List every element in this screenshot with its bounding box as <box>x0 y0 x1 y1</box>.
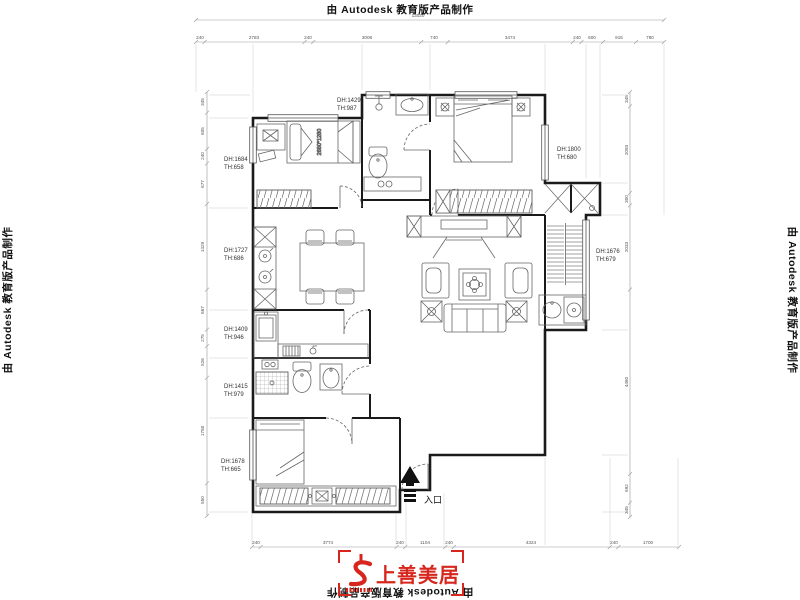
tag-dh: DH:1684 <box>224 157 248 163</box>
entrance-label: 入口 <box>424 495 442 505</box>
window-bottom-bedroom <box>250 430 257 480</box>
doors <box>326 124 458 490</box>
tag-th: TH:686 <box>224 256 244 262</box>
dim: 2093 <box>624 144 629 155</box>
wardrobe-top-right <box>436 190 532 213</box>
armchair-right <box>505 263 532 298</box>
dim: 740 <box>430 35 438 40</box>
window-bath-top <box>366 92 390 99</box>
dining-cabinet <box>254 227 276 309</box>
dim: 915 <box>615 35 623 40</box>
tag-th: TH:665 <box>221 467 241 473</box>
dim: 1758 <box>200 425 205 436</box>
room-tag: DH:1800 TH:680 <box>557 147 581 161</box>
room-tag: DH:1684 TH:658 <box>224 157 248 171</box>
dim: 692 <box>624 484 629 492</box>
dim: 345 <box>624 506 629 514</box>
dim: 345 <box>200 98 205 106</box>
dim: 1104 <box>420 540 430 545</box>
room-tag: DH:1409 TH:946 <box>224 327 248 341</box>
entrance-marker: 入口 <box>400 466 442 505</box>
room-tag: DH:1678 TH:665 <box>221 459 245 473</box>
dim: 300 <box>624 195 629 203</box>
tag-th: TH:946 <box>224 335 244 341</box>
bath-cabinet <box>364 177 421 191</box>
laundry-niche <box>539 295 586 325</box>
bed-size-label: 2680*1280 <box>317 129 323 156</box>
dim: 240 <box>610 540 618 545</box>
dim: 240 <box>196 35 204 40</box>
dim: 550 <box>200 496 205 504</box>
tag-dh: DH:1676 <box>596 249 620 255</box>
tag-th: TH:987 <box>337 106 357 112</box>
stove <box>283 346 317 356</box>
kitchen-sink <box>256 312 276 341</box>
dim: 3474 <box>505 35 516 40</box>
dim: 2783 <box>249 35 260 40</box>
dim: 4460 <box>624 376 629 387</box>
dim: 1429 <box>200 241 205 252</box>
tag-th: TH:658 <box>224 165 244 171</box>
dim: 240 <box>304 35 312 40</box>
toilet-lower <box>293 362 311 393</box>
window-top-left <box>268 115 338 122</box>
tag-dh: DH:1409 <box>224 327 248 333</box>
armchair-left <box>422 263 449 298</box>
tag-dh: DH:1415 <box>224 384 248 390</box>
room-tag: DH:1727 TH:686 <box>224 248 248 262</box>
washbasin-lower <box>320 364 342 390</box>
balcony-rack <box>547 223 583 285</box>
wardrobe-bottom <box>256 486 396 506</box>
dining-table <box>300 230 364 304</box>
kitchen-counter <box>254 312 368 358</box>
side-table-left <box>421 301 442 322</box>
door-kitchen <box>344 310 368 334</box>
door-bottom-bedroom <box>326 418 352 444</box>
dim: 3774 <box>323 540 334 545</box>
window-left-bedroom <box>250 127 257 163</box>
toilet-bathroom-top <box>369 147 387 178</box>
coffee-table <box>459 269 490 300</box>
tag-dh: DH:1429 <box>337 98 361 104</box>
dim: 1700 <box>643 540 654 545</box>
dim: 240 <box>396 540 404 545</box>
side-table-right <box>506 301 527 322</box>
logo-brand-text: 上善美居 <box>376 559 460 588</box>
company-logo: 上善美居 <box>338 550 464 596</box>
dim: 780 <box>646 35 654 40</box>
room-tags: DH:1684 TH:658 DH:1429 TH:987 DH:1800 TH… <box>221 98 620 473</box>
sofa <box>444 304 506 332</box>
dim: 2033 <box>624 241 629 252</box>
room-tag: DH:1676 TH:679 <box>596 249 620 263</box>
dim: 600 <box>588 35 596 40</box>
dim: 240 <box>252 540 260 545</box>
autodesk-stamp-left: 由 Autodesk 教育版产品制作 <box>0 201 16 399</box>
tv-cabinet <box>407 216 521 258</box>
dim: 677 <box>200 180 205 188</box>
logo-s-icon <box>341 552 377 592</box>
floor-plan-drawing: 13020 240 2783 240 3008 740 3474 240 600… <box>0 0 800 600</box>
window-right-bedroom <box>542 125 549 180</box>
dim: 3008 <box>362 35 373 40</box>
dim: 240 <box>445 540 453 545</box>
blueprint-canvas: 由 Autodesk 教育版产品制作 由 Autodesk 教育版产品制作 由 … <box>0 0 800 600</box>
window-top-right <box>455 92 517 99</box>
dim: 667 <box>200 306 205 314</box>
autodesk-stamp-top: 由 Autodesk 教育版产品制作 <box>0 2 800 17</box>
dim: 4324 <box>526 540 537 545</box>
tag-th: TH:979 <box>224 392 244 398</box>
tag-dh: DH:1800 <box>557 147 581 153</box>
dim: 526 <box>200 358 205 366</box>
dim: 240 <box>573 35 581 40</box>
dim: 605 <box>200 127 205 135</box>
wardrobe-top-left <box>257 190 311 208</box>
logo-fine-print <box>346 588 372 592</box>
desk-with-computer <box>257 124 285 162</box>
tag-dh: DH:1678 <box>221 459 245 465</box>
tag-th: TH:680 <box>557 155 577 161</box>
room-tag: DH:1415 TH:979 <box>224 384 248 398</box>
autodesk-stamp-right: 由 Autodesk 教育版产品制作 <box>784 201 800 399</box>
shower-floor-grid <box>256 372 288 394</box>
bed-top-right <box>454 96 512 162</box>
room-tag: DH:1429 TH:987 <box>337 98 361 112</box>
dim: 240 <box>200 152 205 160</box>
tag-dh: DH:1727 <box>224 248 248 254</box>
tag-th: TH:679 <box>596 257 616 263</box>
vanity-small <box>262 360 278 369</box>
dim: 345 <box>624 95 629 103</box>
sink-bathroom-top <box>396 94 428 115</box>
door-bathroom-lower <box>342 366 370 394</box>
nightstand-right <box>512 98 530 116</box>
door-bathroom-top <box>404 124 430 150</box>
door-left-bedroom <box>340 186 362 208</box>
bed-top-left <box>287 121 360 163</box>
bed-bottom <box>256 420 304 484</box>
nightstand-left <box>436 98 454 116</box>
dim: 275 <box>200 334 205 342</box>
